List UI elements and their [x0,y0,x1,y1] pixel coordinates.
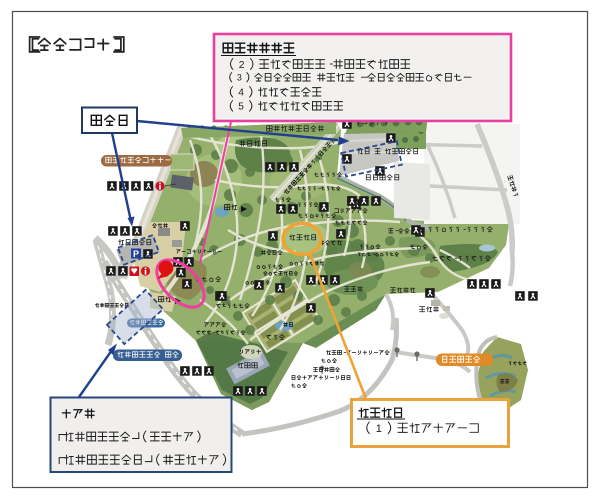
svg-text:P: P [133,249,139,259]
svg-text:5: 5 [238,102,244,113]
svg-text:1: 1 [376,423,382,435]
svg-text:4: 4 [238,88,244,99]
svg-text:2: 2 [239,60,245,71]
svg-text:3: 3 [237,73,242,83]
